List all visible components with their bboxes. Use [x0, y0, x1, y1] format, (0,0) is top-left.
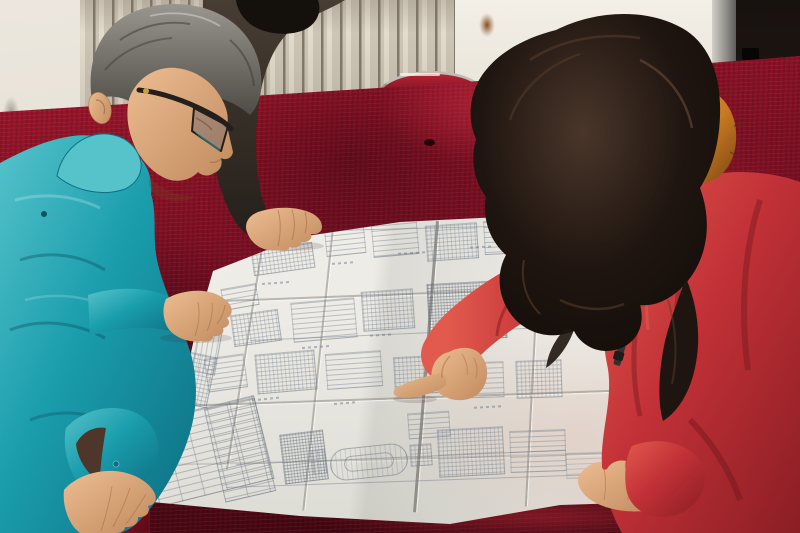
jacket-snap — [41, 211, 47, 217]
man-left-hand — [64, 471, 156, 533]
woman — [393, 14, 800, 533]
glasses-hinge — [143, 88, 149, 94]
people-layer — [0, 0, 800, 533]
cuff-button — [113, 461, 119, 467]
photo-scene — [0, 0, 800, 533]
woman-index-finger — [394, 373, 447, 398]
man-chin-shadow — [149, 178, 196, 201]
left-man — [0, 4, 261, 533]
